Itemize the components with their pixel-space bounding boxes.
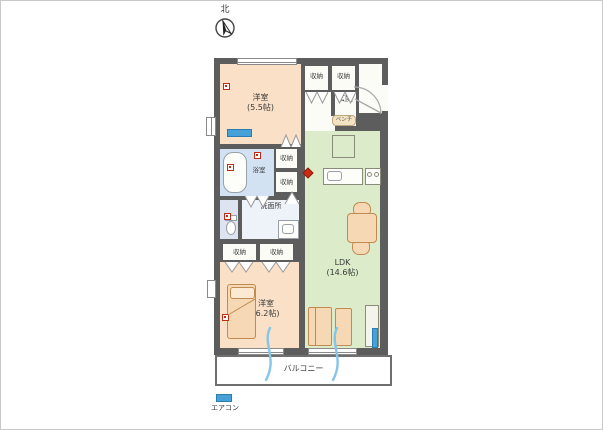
- pillow-icon: [230, 287, 255, 299]
- entrance-label: 玄関: [331, 94, 359, 104]
- floor-plan-image: 北 洋室 (5.5帖) 収納 収納 玄関 ベンチ 浴室 収納 収納 洗面所 LD: [0, 0, 603, 430]
- compass-icon: [201, 11, 261, 61]
- bedroom-north-name: 洋室: [220, 93, 301, 103]
- bedroom-north-size: (5.5帖): [220, 103, 301, 113]
- hallway: [305, 92, 331, 131]
- closet-mid-1-label: 収納: [276, 154, 297, 162]
- lounge-chair-icon: [335, 308, 352, 346]
- alarm-icon: [227, 164, 234, 171]
- bedroom-north-label: 洋室 (5.5帖): [220, 93, 301, 113]
- bench-label: ベンチ: [332, 115, 356, 126]
- refrigerator-space-icon: [332, 135, 355, 158]
- chair-icon: [352, 242, 370, 255]
- closet-mid-2-label: 収納: [276, 178, 297, 186]
- aircon-bedroom-north: [227, 129, 252, 137]
- window-west-lower: [207, 280, 216, 298]
- sofa-icon: [308, 307, 332, 346]
- burner-icon: [367, 172, 372, 177]
- balcony-door-ldk: [308, 348, 357, 355]
- closet-south-1-label: 収納: [223, 248, 256, 256]
- burner-icon: [374, 172, 379, 177]
- closet-hall-2-label: 収納: [332, 72, 355, 80]
- toilet-bowl-icon: [226, 221, 236, 235]
- ldk-label: LDK (14.6帖): [305, 258, 380, 278]
- closet-south-2-label: 収納: [260, 248, 293, 256]
- legend-aircon-label: エアコン: [211, 404, 241, 413]
- closet-hall-1-label: 収納: [305, 72, 328, 80]
- bathroom-label: 浴室: [245, 166, 273, 174]
- dining-table-icon: [347, 213, 377, 243]
- window-west-upper: [206, 117, 216, 136]
- legend-aircon-swatch: [216, 394, 232, 402]
- ldk-name: LDK: [305, 258, 380, 268]
- kitchen-sink-icon: [327, 171, 342, 181]
- washroom-label: 洗面所: [245, 202, 297, 211]
- alarm-icon: [222, 314, 229, 321]
- bed-icon: [227, 284, 256, 339]
- front-door-opening: [382, 85, 388, 111]
- alarm-icon: [224, 213, 231, 220]
- bathtub-icon: [223, 152, 247, 193]
- vanity-sink-icon: [282, 224, 294, 234]
- alarm-icon: [254, 152, 261, 159]
- balcony-label: バルコニー: [215, 364, 392, 374]
- window-north: [237, 58, 297, 65]
- north-label: 北: [213, 5, 237, 16]
- ldk-size: (14.6帖): [305, 268, 380, 278]
- balcony-door-bedroom: [238, 348, 284, 355]
- entry-door-zone: [359, 64, 382, 113]
- alarm-icon: [223, 83, 230, 90]
- aircon-ldk: [372, 328, 378, 348]
